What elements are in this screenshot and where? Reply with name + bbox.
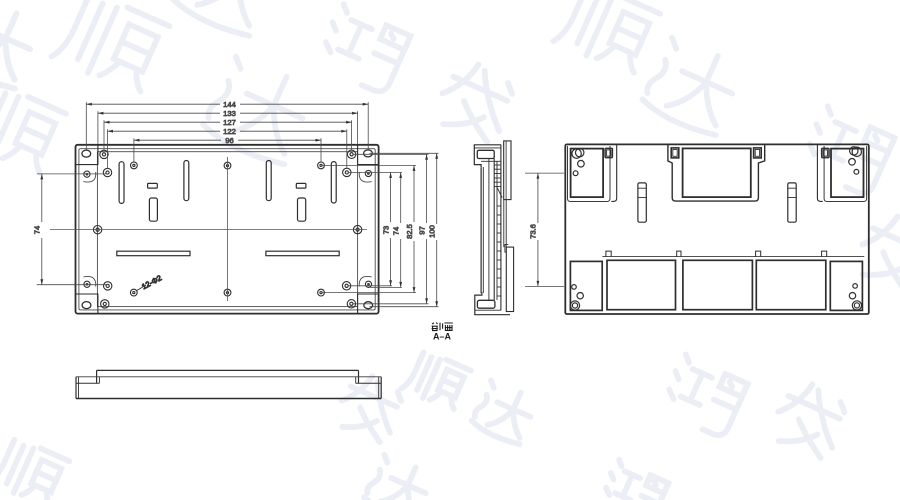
svg-text:74: 74 — [392, 227, 401, 235]
svg-text:97: 97 — [417, 226, 426, 234]
svg-text:144: 144 — [223, 100, 236, 109]
svg-text:122: 122 — [223, 127, 236, 136]
svg-text:A–A: A–A — [433, 332, 452, 342]
svg-text:133: 133 — [223, 109, 236, 118]
svg-text:73: 73 — [381, 226, 390, 234]
svg-text:73.6: 73.6 — [529, 224, 538, 239]
svg-text:74: 74 — [33, 226, 42, 234]
svg-text:127: 127 — [223, 118, 236, 127]
svg-text:96: 96 — [225, 136, 233, 145]
svg-text:12-Φ2: 12-Φ2 — [140, 273, 163, 291]
svg-text:82.5: 82.5 — [405, 224, 414, 239]
svg-text:100: 100 — [428, 225, 437, 238]
